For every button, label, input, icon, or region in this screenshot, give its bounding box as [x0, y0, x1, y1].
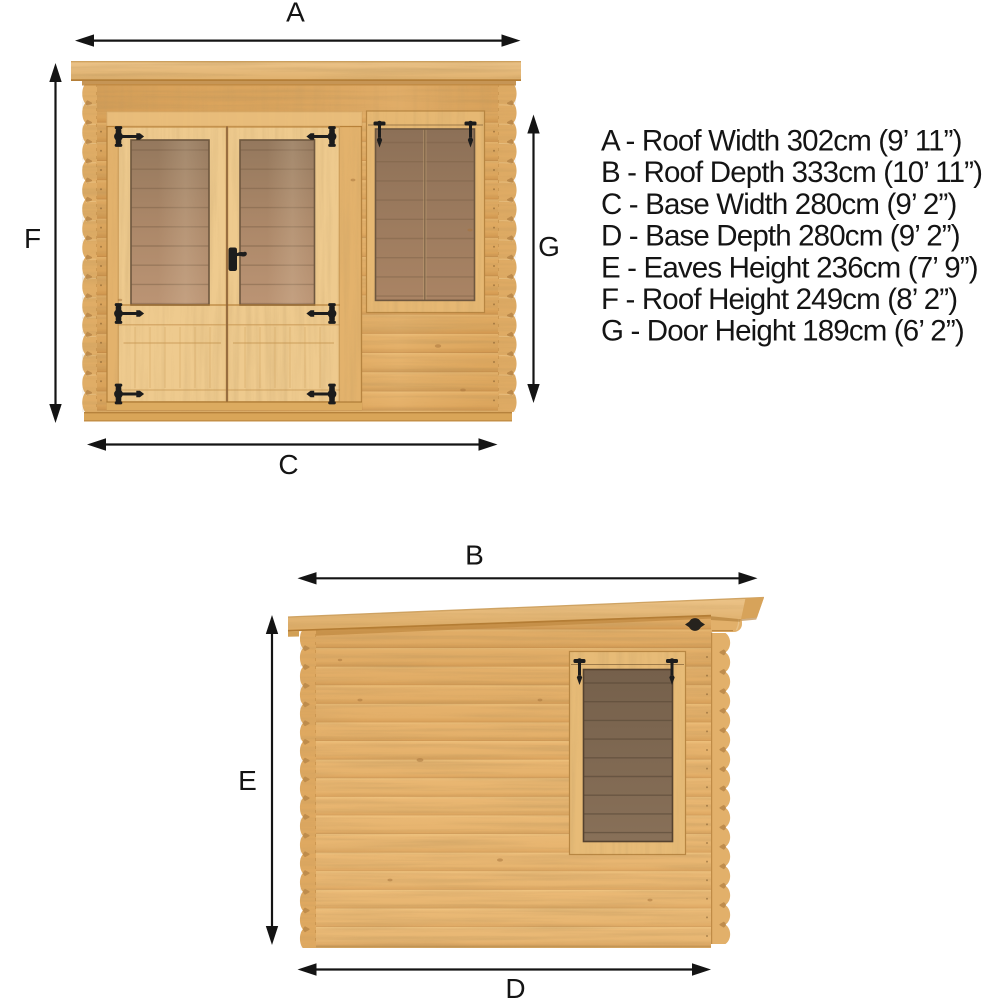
svg-text:C - Base Width 280cm (9’ 2”): C - Base Width 280cm (9’ 2”): [601, 188, 956, 221]
svg-text:D: D: [505, 973, 525, 1000]
svg-text:F - Roof Height 249cm (8’ 2”): F - Roof Height 249cm (8’ 2”): [601, 283, 957, 316]
svg-text:E - Eaves Height 236cm (7’ 9”): E - Eaves Height 236cm (7’ 9”): [601, 251, 978, 284]
svg-text:B - Roof Depth 333cm (10’ 11”): B - Roof Depth 333cm (10’ 11”): [601, 156, 982, 189]
svg-text:F: F: [24, 223, 41, 254]
svg-text:A: A: [286, 0, 305, 28]
svg-text:G - Door Height 189cm (6’ 2”): G - Door Height 189cm (6’ 2”): [601, 315, 964, 348]
svg-text:A - Roof Width 302cm (9’ 11”): A - Roof Width 302cm (9’ 11”): [601, 125, 962, 158]
svg-text:E: E: [238, 765, 257, 796]
svg-text:G: G: [538, 231, 560, 262]
svg-text:C: C: [278, 449, 298, 480]
svg-text:D - Base Depth 280cm (9’ 2”): D - Base Depth 280cm (9’ 2”): [601, 220, 960, 253]
svg-text:B: B: [465, 540, 484, 571]
